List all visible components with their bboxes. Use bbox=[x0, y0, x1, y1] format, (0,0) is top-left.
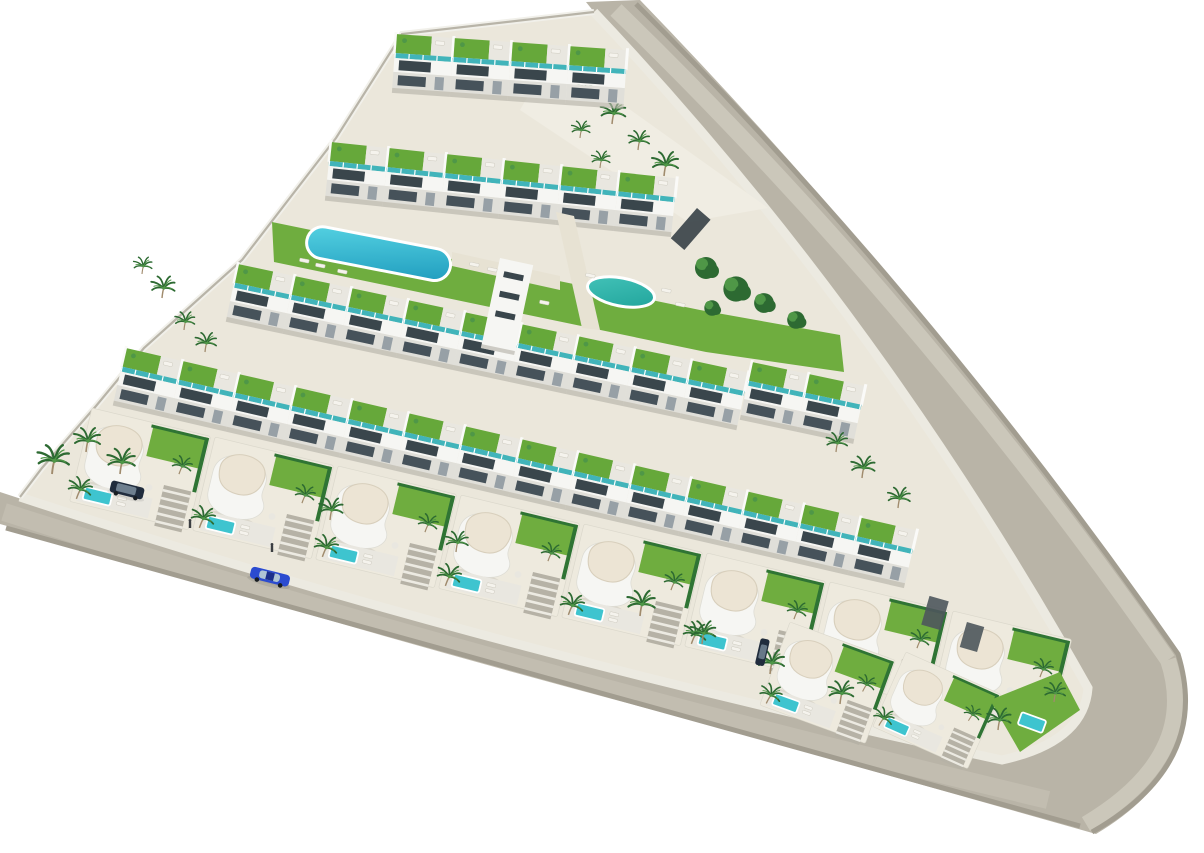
site-aerial-render bbox=[0, 0, 1204, 853]
aerial-render-canvas bbox=[0, 0, 1204, 853]
pedestrian-2 bbox=[271, 543, 274, 552]
pedestrian-1 bbox=[189, 519, 192, 528]
